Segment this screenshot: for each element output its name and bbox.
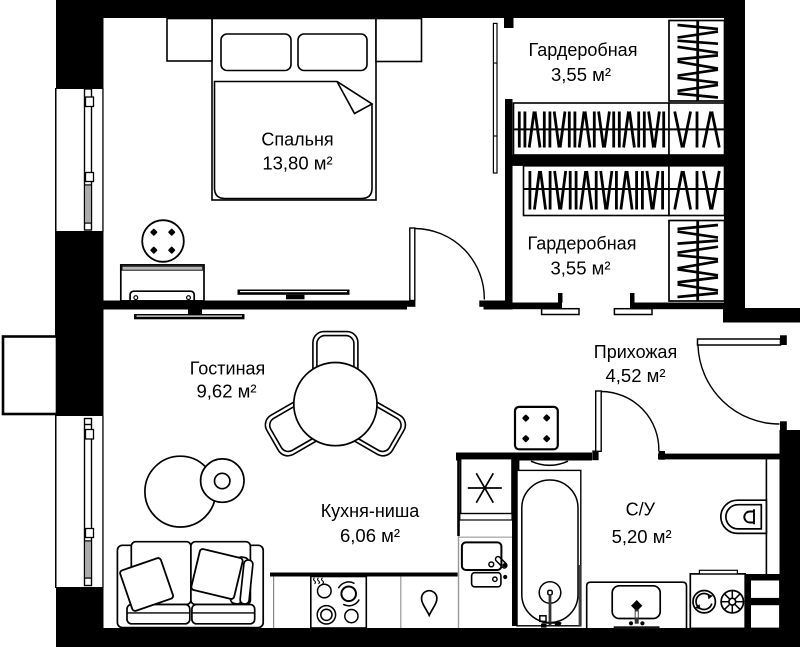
svg-text:С/У: С/У (626, 500, 656, 520)
svg-text:3,55 м²: 3,55 м² (550, 258, 610, 279)
svg-text:4,52 м²: 4,52 м² (605, 365, 665, 386)
svg-text:5,20 м²: 5,20 м² (612, 526, 672, 547)
svg-text:Кухня-ниша: Кухня-ниша (321, 501, 421, 521)
svg-text:Гардеробная: Гардеробная (528, 234, 637, 254)
svg-text:13,80 м²: 13,80 м² (262, 153, 332, 174)
svg-text:9,62 м²: 9,62 м² (196, 381, 256, 402)
svg-text:Гардеробная: Гардеробная (529, 40, 638, 60)
svg-text:6,06 м²: 6,06 м² (340, 525, 400, 546)
svg-text:Гостиная: Гостиная (190, 359, 266, 379)
svg-text:Прихожая: Прихожая (594, 342, 677, 362)
svg-text:Спальня: Спальня (261, 130, 333, 150)
svg-text:3,55 м²: 3,55 м² (551, 64, 611, 85)
